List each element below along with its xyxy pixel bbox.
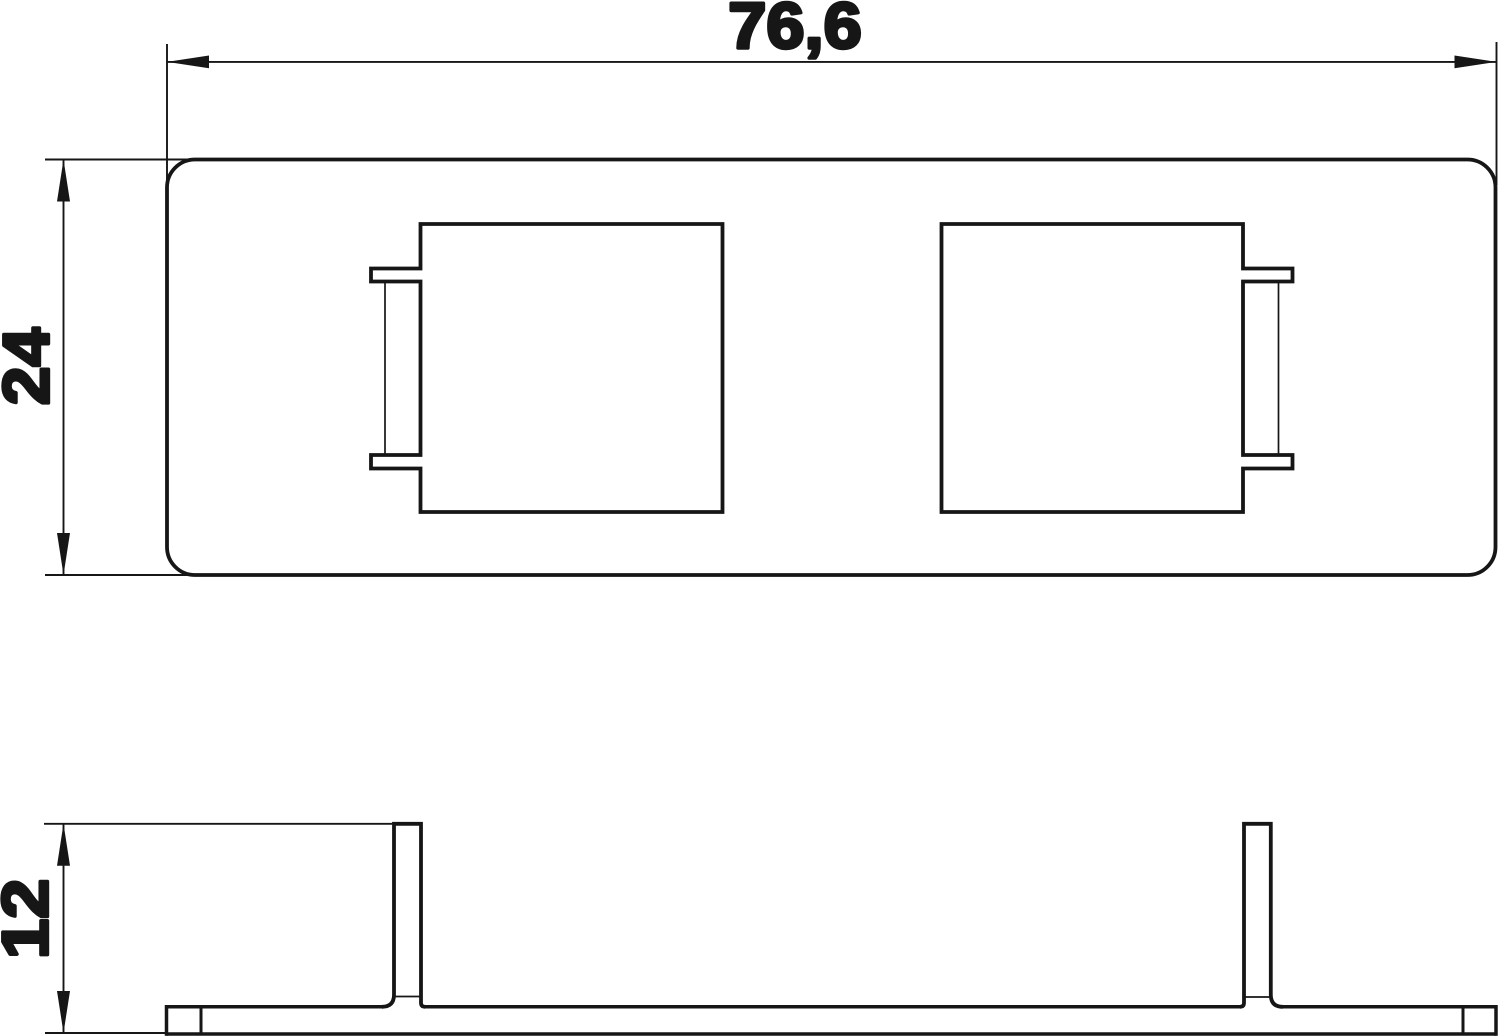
svg-text:12: 12 [0, 879, 61, 959]
svg-text:24: 24 [0, 328, 63, 406]
svg-text:76,6: 76,6 [728, 0, 862, 62]
